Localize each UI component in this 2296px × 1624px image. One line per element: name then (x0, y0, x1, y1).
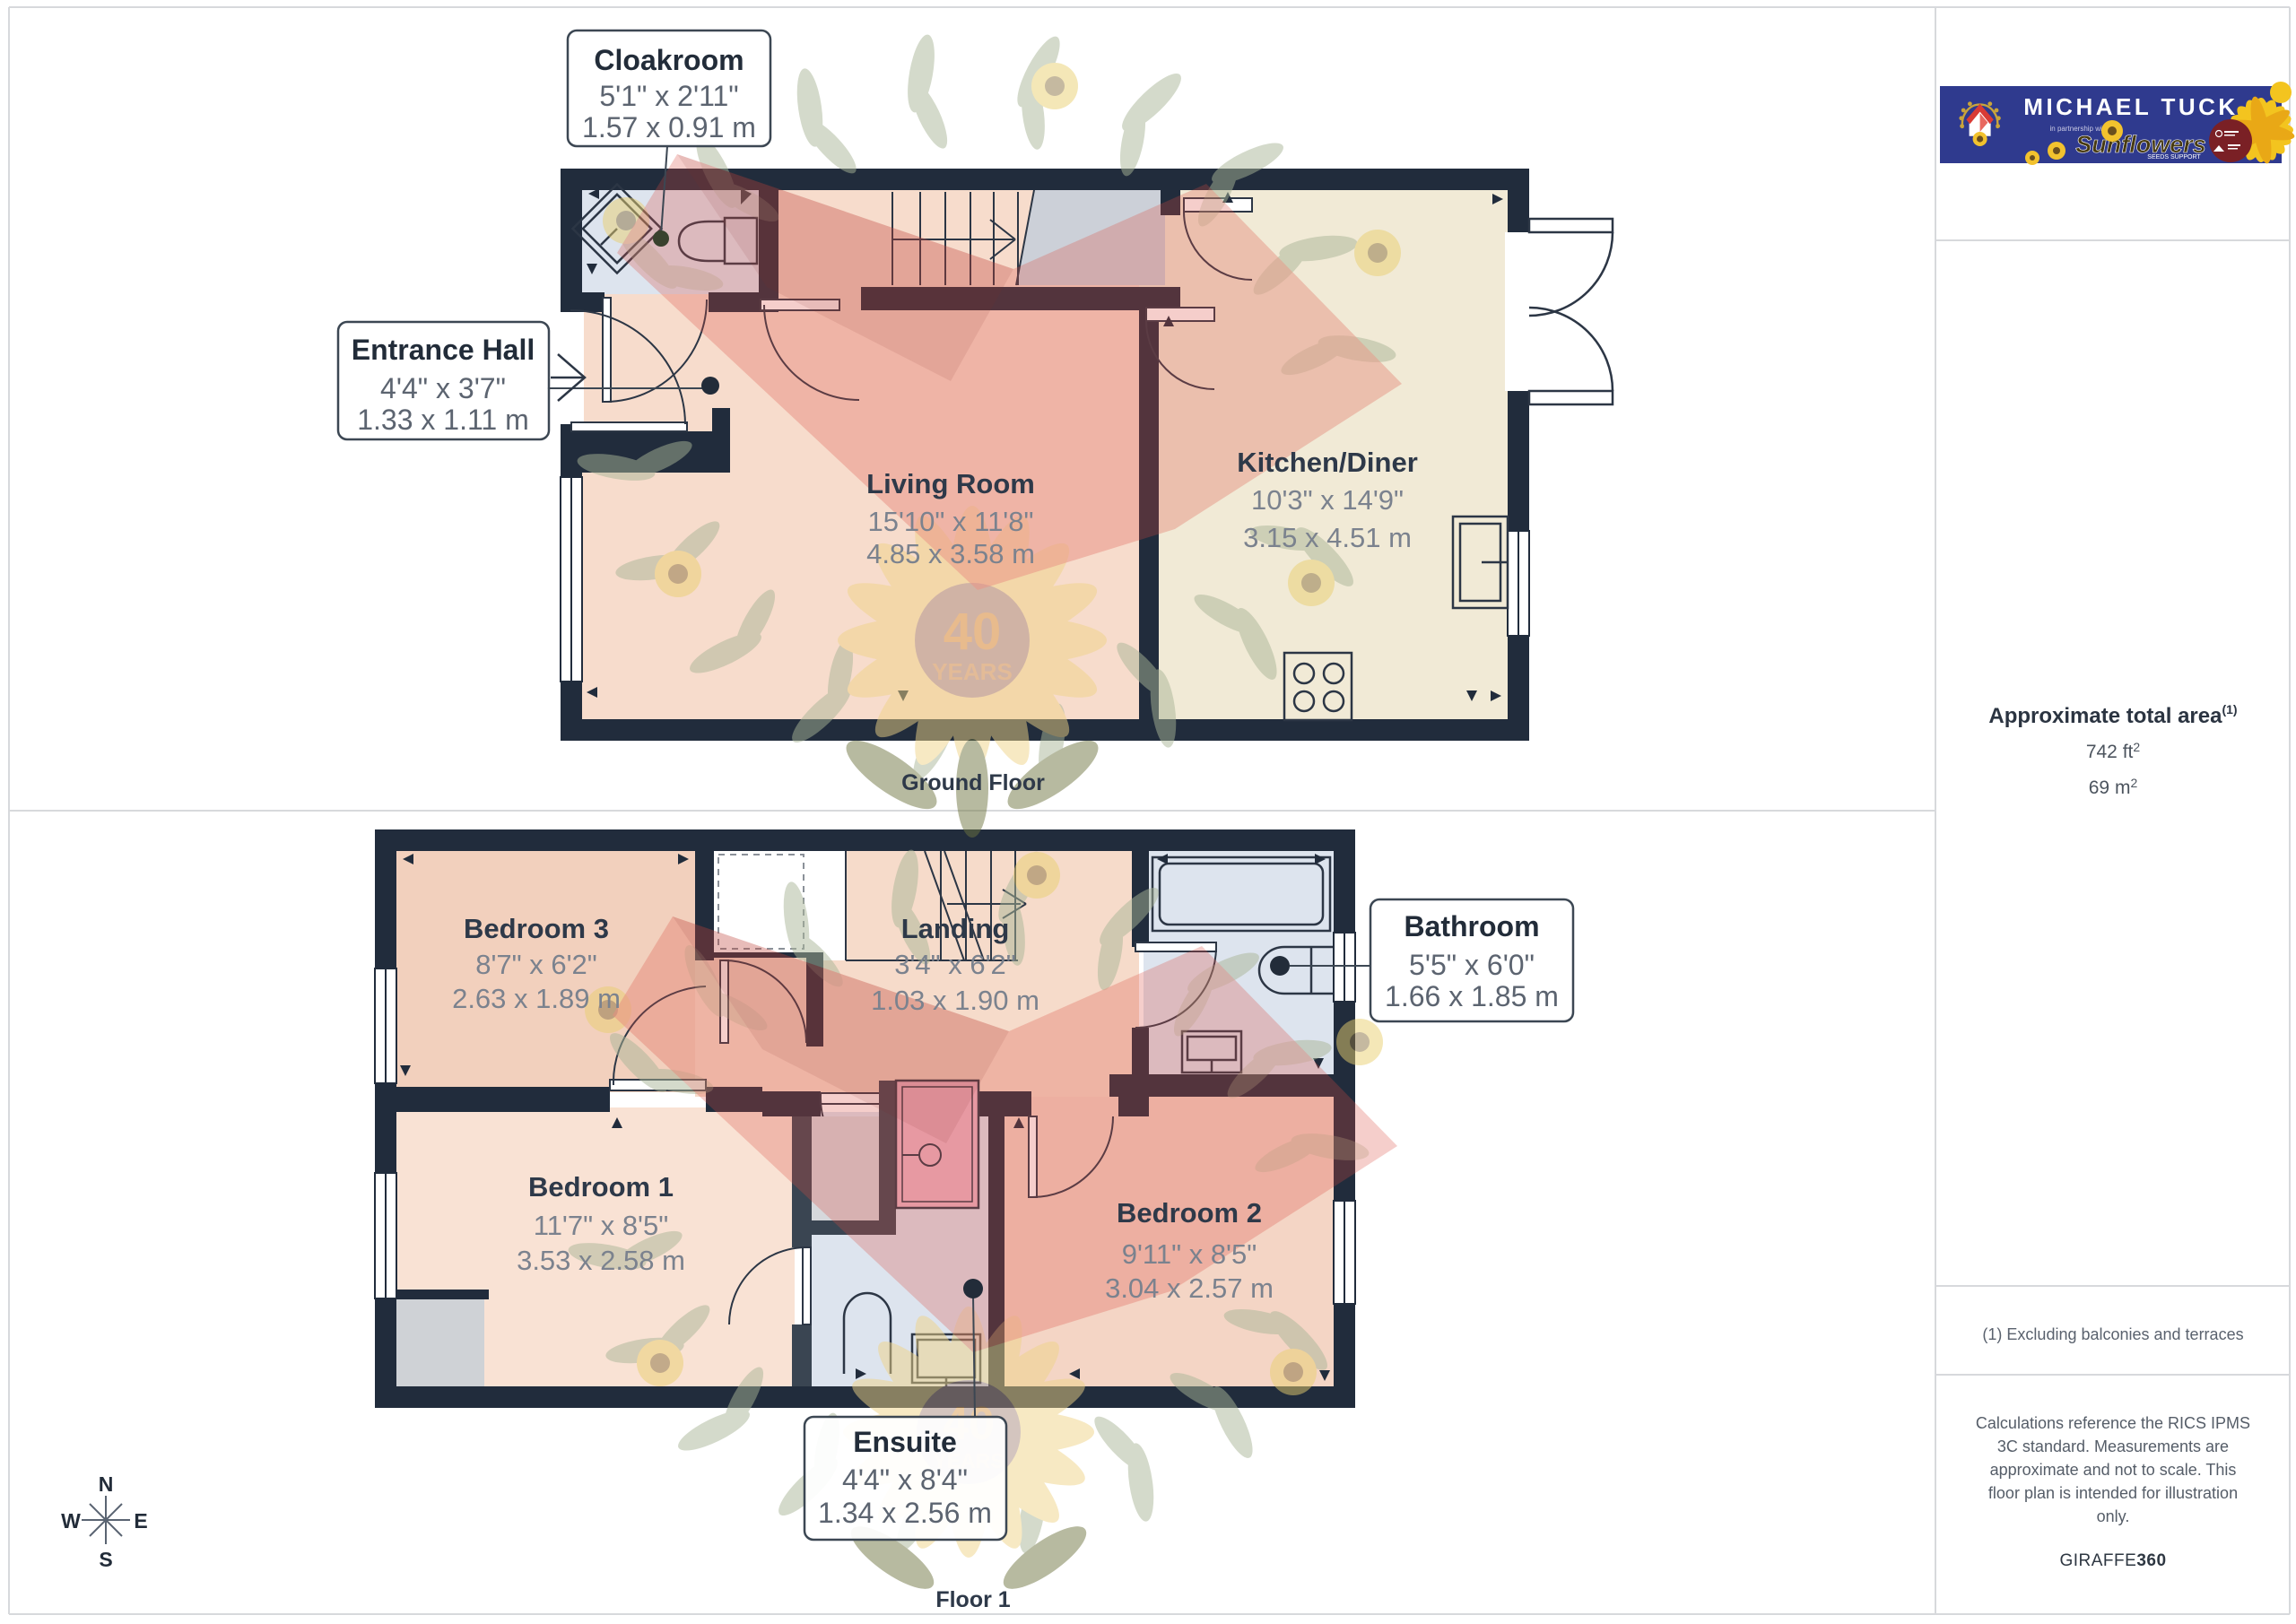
svg-text:8'7" x 6'2": 8'7" x 6'2" (475, 949, 597, 980)
svg-text:YEARS: YEARS (932, 658, 1013, 685)
svg-text:floor plan is intended for ill: floor plan is intended for illustration (1988, 1484, 2238, 1502)
svg-text:5'1" x 2'11": 5'1" x 2'11" (599, 80, 738, 112)
svg-text:Kitchen/Diner: Kitchen/Diner (1237, 447, 1418, 478)
svg-text:only.: only. (2097, 1507, 2130, 1525)
svg-text:Bedroom 1: Bedroom 1 (528, 1171, 674, 1203)
svg-text:2.63 x 1.89 m: 2.63 x 1.89 m (452, 983, 621, 1014)
svg-text:Bedroom 2: Bedroom 2 (1117, 1197, 1262, 1229)
svg-text:Entrance Hall: Entrance Hall (352, 334, 535, 366)
svg-text:4'4" x 3'7": 4'4" x 3'7" (380, 372, 506, 404)
svg-text:1.34 x 2.56 m: 1.34 x 2.56 m (818, 1497, 992, 1529)
svg-text:3.53 x 2.58 m: 3.53 x 2.58 m (517, 1245, 685, 1276)
svg-text:SEEDS SUPPORT: SEEDS SUPPORT (2147, 154, 2201, 161)
svg-text:Bathroom: Bathroom (1404, 910, 1539, 942)
svg-text:S: S (99, 1548, 112, 1571)
svg-text:W: W (61, 1509, 81, 1533)
svg-text:3.15 x 4.51 m: 3.15 x 4.51 m (1243, 522, 1412, 553)
svg-text:9'11" x 8'5": 9'11" x 8'5" (1122, 1238, 1257, 1270)
svg-text:1.03 x 1.90 m: 1.03 x 1.90 m (871, 985, 1039, 1016)
svg-text:Approximate total area(1): Approximate total area(1) (1988, 702, 2237, 728)
svg-text:1.66 x 1.85 m: 1.66 x 1.85 m (1385, 980, 1559, 1012)
svg-text:Floor 1: Floor 1 (935, 1587, 1010, 1612)
svg-text:GIRAFFE360: GIRAFFE360 (2059, 1551, 2166, 1570)
svg-text:N: N (99, 1472, 114, 1496)
svg-text:1.33 x 1.11 m: 1.33 x 1.11 m (357, 404, 529, 436)
svg-text:MICHAEL TUCK: MICHAEL TUCK (2023, 93, 2238, 120)
svg-text:Calculations reference the RIC: Calculations reference the RICS IPMS (1976, 1414, 2250, 1432)
svg-text:5'5" x 6'0": 5'5" x 6'0" (1409, 949, 1535, 981)
svg-text:742 ft2: 742 ft2 (2086, 740, 2141, 762)
svg-text:3'4" x 6'2": 3'4" x 6'2" (894, 949, 1016, 980)
svg-text:11'7" x 8'5": 11'7" x 8'5" (534, 1210, 668, 1241)
svg-text:(1) Excluding balconies and te: (1) Excluding balconies and terraces (1982, 1325, 2243, 1343)
svg-text:Ground Floor: Ground Floor (901, 770, 1045, 795)
svg-text:Living Room: Living Room (866, 468, 1035, 499)
svg-text:approximate and not to scale.: approximate and not to scale. This (1990, 1461, 2237, 1479)
svg-text:15'10" x 11'8": 15'10" x 11'8" (868, 506, 1034, 537)
svg-text:E: E (134, 1509, 147, 1533)
svg-text:3C standard. Measurements are: 3C standard. Measurements are (1997, 1437, 2229, 1455)
svg-text:4.85 x 3.58 m: 4.85 x 3.58 m (866, 538, 1035, 569)
svg-text:Cloakroom: Cloakroom (594, 44, 744, 76)
svg-text:4'4" x 8'4": 4'4" x 8'4" (842, 1463, 968, 1496)
svg-text:Ensuite: Ensuite (853, 1426, 957, 1458)
svg-text:3.04 x 2.57 m: 3.04 x 2.57 m (1105, 1272, 1274, 1304)
svg-text:69 m2: 69 m2 (2089, 776, 2138, 798)
svg-text:40: 40 (944, 603, 1002, 661)
svg-text:Landing: Landing (901, 913, 1010, 944)
svg-text:10'3" x 14'9": 10'3" x 14'9" (1251, 484, 1404, 516)
svg-text:1.57 x 0.91 m: 1.57 x 0.91 m (582, 111, 756, 143)
svg-text:Bedroom 3: Bedroom 3 (464, 913, 609, 944)
